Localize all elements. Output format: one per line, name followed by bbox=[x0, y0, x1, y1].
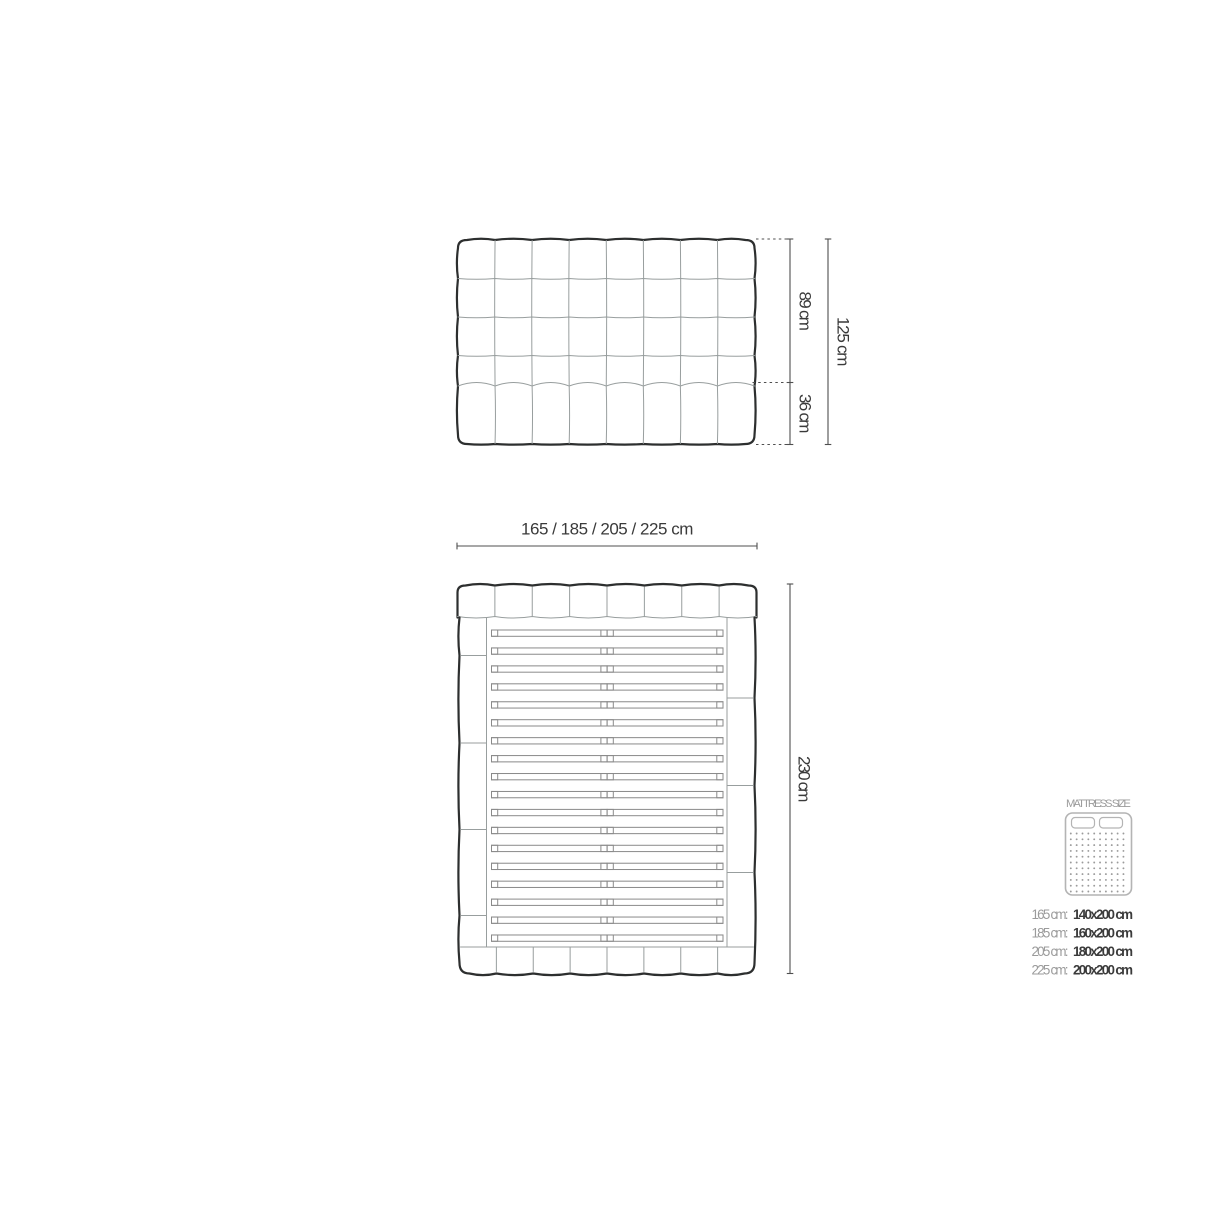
top-length-label: 230 cm bbox=[795, 756, 814, 802]
headboard-front-view bbox=[457, 239, 756, 445]
tufting-vertical-seams bbox=[495, 241, 718, 386]
slat bbox=[492, 809, 724, 815]
mattress-size-row: 185 cm: 160x200 cm bbox=[1032, 926, 1134, 941]
bed-top-view bbox=[458, 584, 757, 975]
slat-grid bbox=[492, 630, 724, 941]
bed-dimension-diagram: 89 cm 36 cm 125 cm 165 / 185 / 205 / 225… bbox=[0, 0, 1214, 1214]
mattress-size-value: 200x200 cm bbox=[1073, 963, 1133, 978]
slat bbox=[492, 935, 724, 941]
slat bbox=[492, 720, 724, 726]
mattress-size-value: 140x200 cm bbox=[1073, 907, 1133, 922]
slat bbox=[492, 684, 724, 690]
top-width-dimension: 165 / 185 / 205 / 225 cm bbox=[457, 520, 757, 550]
mattress-icon bbox=[1066, 813, 1132, 895]
mattress-size-panel: MATTRESS SIZE 165 cm: 140x200 cm 185 cm:… bbox=[1032, 798, 1134, 978]
bed-width-label: 225 cm: bbox=[1032, 963, 1069, 978]
mattress-size-list: 165 cm: 140x200 cm 185 cm: 160x200 cm 20… bbox=[1032, 907, 1134, 978]
footboard-band bbox=[461, 947, 754, 972]
front-upper-height-label: 89 cm bbox=[796, 292, 815, 331]
bed-width-label: 165 cm: bbox=[1032, 907, 1069, 922]
slat bbox=[492, 917, 724, 923]
slat bbox=[492, 648, 724, 654]
front-lower-height-label: 36 cm bbox=[796, 394, 815, 433]
front-height-dimensions: 89 cm 36 cm 125 cm bbox=[753, 239, 853, 445]
rail-segment-seams bbox=[461, 656, 754, 916]
slat bbox=[492, 756, 724, 762]
bed-dimension-sheet: 89 cm 36 cm 125 cm 165 / 185 / 205 / 225… bbox=[0, 0, 1214, 1214]
mattress-size-title: MATTRESS SIZE bbox=[1066, 798, 1131, 810]
front-total-height-label: 125 cm bbox=[834, 317, 853, 366]
slat bbox=[492, 845, 724, 851]
slat bbox=[492, 827, 724, 833]
pillow-icon bbox=[1072, 818, 1095, 829]
mattress-size-row: 225 cm: 200x200 cm bbox=[1032, 963, 1134, 978]
mattress-outline bbox=[1066, 813, 1132, 895]
headboard-band-scallop bbox=[458, 617, 757, 619]
slat bbox=[492, 666, 724, 672]
slat bbox=[492, 899, 724, 905]
mattress-size-row: 205 cm: 180x200 cm bbox=[1032, 944, 1134, 959]
mattress-size-row: 165 cm: 140x200 cm bbox=[1032, 907, 1134, 922]
slat bbox=[492, 738, 724, 744]
slat bbox=[492, 774, 724, 780]
pillow-icon bbox=[1100, 818, 1123, 829]
slat bbox=[492, 791, 724, 797]
top-length-dimension: 230 cm bbox=[787, 584, 814, 974]
slat bbox=[492, 863, 724, 869]
bed-width-label: 185 cm: bbox=[1032, 926, 1069, 941]
slat bbox=[492, 881, 724, 887]
bed-width-label: 205 cm: bbox=[1032, 944, 1069, 959]
slat bbox=[492, 702, 724, 708]
top-width-label: 165 / 185 / 205 / 225 cm bbox=[521, 520, 693, 539]
mattress-size-value: 180x200 cm bbox=[1073, 944, 1133, 959]
slat bbox=[492, 630, 724, 636]
mattress-size-value: 160x200 cm bbox=[1073, 926, 1133, 941]
bottom-panel-dividers bbox=[495, 387, 718, 444]
mattress-dot-pattern bbox=[1070, 833, 1125, 893]
headboard-band-dividers bbox=[495, 587, 719, 616]
